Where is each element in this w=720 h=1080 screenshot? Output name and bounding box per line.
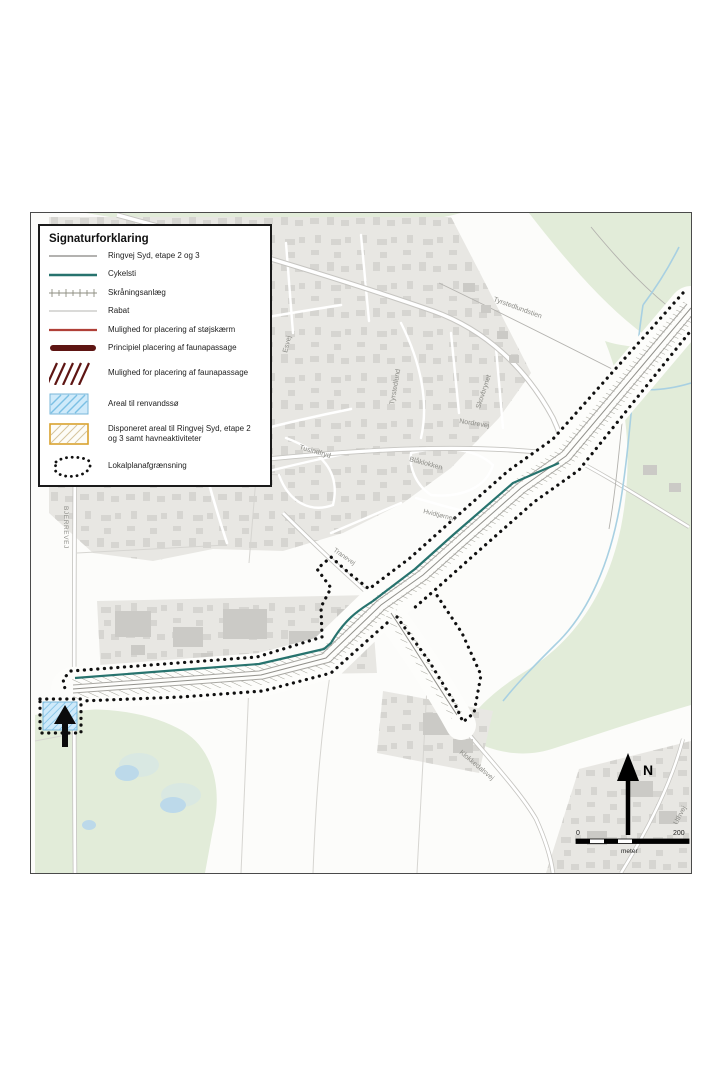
legend-item-ringvej: Ringvej Syd, etape 2 og 3 [49, 251, 261, 261]
lokalplan-boundary-swatch [49, 453, 99, 479]
legend-item-faunapassage-mulighed: Mulighed for placering af faunapassage [49, 361, 261, 385]
legend-item-lokalplan: Lokalplanafgrænsning [49, 453, 261, 479]
pond [82, 820, 96, 830]
stojskaerm-line-swatch [49, 326, 99, 334]
legend-label: Rabat [108, 306, 129, 316]
renvandsso-area-swatch [49, 393, 99, 415]
legend-label: Mulighed for placering af faunapassage [108, 368, 248, 378]
legend-label: Lokalplanafgrænsning [108, 461, 187, 471]
skraaningsanlaeg-swatch [49, 288, 99, 298]
faunapassage-line-swatch [49, 343, 99, 353]
legend-item-skraaningsanlaeg: Skråningsanlæg [49, 288, 261, 298]
legend-box: Signaturforklaring Ringvej Syd, etape 2 … [38, 224, 272, 487]
legend-label: Mulighed for placering af støjskærm [108, 325, 235, 335]
legend-item-faunapassage-principiel: Principiel placering af faunapassage [49, 343, 261, 353]
street-label-bjerrevej: BJERREVEJ [62, 506, 69, 549]
pond [160, 797, 186, 813]
legend-item-disponeret-areal: Disponeret areal til Ringvej Syd, etape … [49, 423, 261, 445]
ringvej-line-swatch [49, 252, 99, 260]
faunapassage-hatch-swatch [49, 361, 99, 385]
scale-end: 200 [673, 830, 685, 837]
legend-label: Ringvej Syd, etape 2 og 3 [108, 251, 200, 261]
scale-start: 0 [576, 830, 580, 837]
legend-label: Areal til renvandssø [108, 399, 179, 409]
map-frame: BJERREVEJ Esvej Tyrstedlund Skovbrynet T… [30, 212, 692, 874]
scale-unit: meter [621, 848, 638, 855]
legend-item-cykelsti: Cykelsti [49, 269, 261, 279]
legend-label: Skråningsanlæg [108, 288, 166, 298]
rabat-line-swatch [49, 307, 99, 315]
pond [115, 765, 139, 781]
legend-item-stojskaerm: Mulighed for placering af støjskærm [49, 325, 261, 335]
legend-item-rabat: Rabat [49, 306, 261, 316]
disponeret-area-swatch [49, 423, 99, 445]
cykelsti-line-swatch [49, 271, 99, 279]
legend-title: Signaturforklaring [49, 233, 261, 245]
legend-item-renvandsso: Areal til renvandssø [49, 393, 261, 415]
legend-label: Disponeret areal til Ringvej Syd, etape … [108, 424, 261, 445]
north-label: N [643, 762, 653, 778]
legend-label: Cykelsti [108, 269, 136, 279]
legend-label: Principiel placering af faunapassage [108, 343, 237, 353]
page: { "legend": { "title": "Signaturforklari… [0, 0, 720, 1080]
